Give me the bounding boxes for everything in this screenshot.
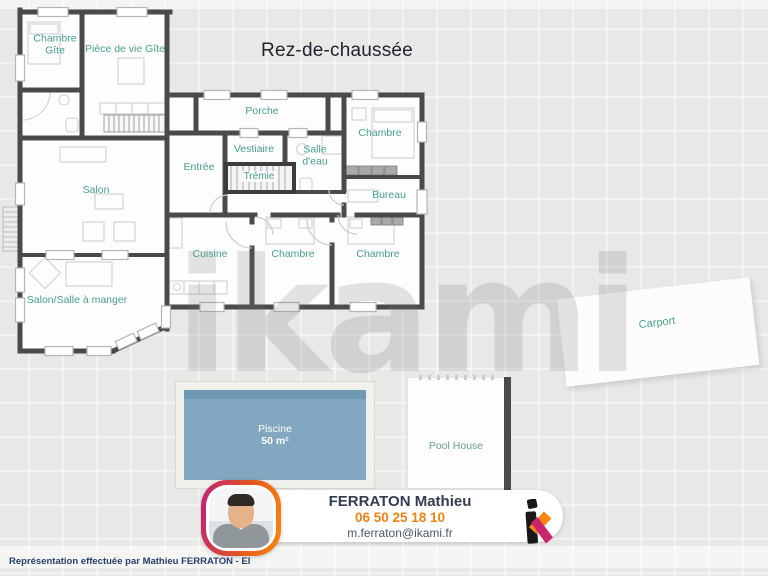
- room-label-tremie: Trémie: [242, 171, 277, 183]
- page-title: Rez-de-chaussée: [247, 40, 427, 62]
- room-label-piece-de-vie-gite: Pièce de vie Gîte: [85, 43, 165, 55]
- room-label-vestiaire: Vestiaire: [234, 143, 274, 155]
- room-label-entree: Entrée: [184, 161, 215, 173]
- agent-email: m.ferraton@ikami.fr: [347, 526, 453, 540]
- agent-photo: [209, 488, 273, 548]
- pool-area-label: 50 m²: [261, 435, 288, 447]
- room-label-cuisine: Cuisine: [192, 248, 227, 260]
- pool-water: Piscine 50 m²: [184, 390, 366, 480]
- agent-photo-inner: [206, 485, 276, 551]
- room-label-bureau: Bureau: [372, 189, 406, 201]
- room-label-chambre-est: Chambre: [356, 248, 399, 260]
- room-label-salon-salle-a-manger: Salon/Salle à manger: [27, 294, 127, 306]
- pool-house-area: [407, 377, 505, 489]
- room-label-salon: Salon: [83, 184, 110, 196]
- room-label-salle-eau: Salle d'eau: [292, 144, 338, 169]
- pool-area: Piscine 50 m²: [175, 381, 375, 489]
- floor-plan-page: Carport Piscine 50 m² Pool House ikami C…: [0, 0, 768, 576]
- agent-photo-frame: [201, 480, 281, 556]
- room-label-carport: Carport: [638, 315, 676, 331]
- room-label-pool-house: Pool House: [429, 440, 483, 452]
- agent-card-text: FERRATON Mathieu 06 50 25 18 10 m.ferrat…: [285, 493, 515, 539]
- avatar-hair: [228, 494, 255, 506]
- room-label-chambre-gite: Chambre Gîte: [26, 33, 84, 58]
- pool-house-wall: [504, 377, 511, 496]
- room-label-chambre-nord: Chambre: [358, 127, 401, 139]
- pool-house-window: [419, 375, 499, 380]
- agent-phone: 06 50 25 18 10: [355, 510, 445, 526]
- room-label-porche: Porche: [245, 105, 278, 117]
- ikami-logo-icon: [520, 499, 553, 544]
- agent-name: FERRATON Mathieu: [329, 493, 472, 510]
- attribution-text: Représentation effectuée par Mathieu FER…: [9, 556, 250, 567]
- pool-name-label: Piscine: [258, 423, 292, 435]
- room-label-chambre-centre: Chambre: [271, 248, 314, 260]
